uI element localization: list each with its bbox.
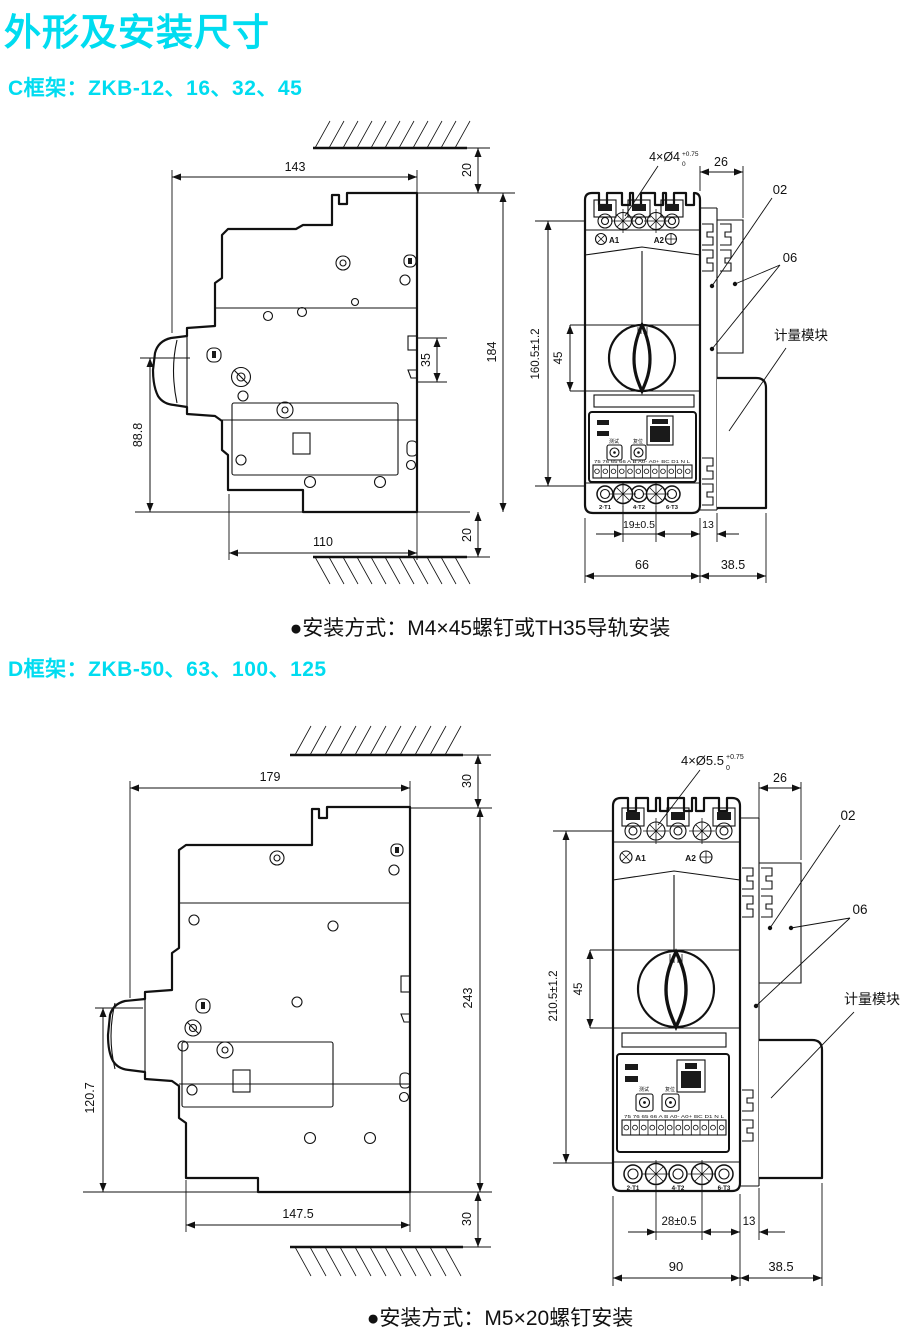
- dim-210-5: 210.5±1.2: [548, 970, 560, 1021]
- d-frame-front-view: A1 A2 测试 复位 75 76 65 66 A B A: [538, 738, 908, 1329]
- dim-20-top: 20: [460, 163, 474, 177]
- dim-height: 210.5±1.2: [548, 831, 613, 1163]
- section-d-heading: D框架：ZKB-50、63、100、125: [8, 653, 327, 683]
- dim-66: 66: [635, 558, 649, 572]
- holes-tol-lower: 0: [682, 161, 686, 168]
- control-panel: 测试 复位 75 76 65 66 A B A0- A0+ BC D1 N L: [617, 1054, 729, 1152]
- c-frame-front-view: A1 A2 测试 复位 75 76 65 66 A B A: [528, 128, 908, 611]
- terminal-4t2: 4·T2: [672, 1185, 685, 1192]
- dim-handle-height: 45: [573, 950, 613, 1028]
- callout-02-label: 02: [840, 808, 855, 823]
- metering-module-label: 计量模块: [774, 328, 828, 343]
- dim-90: 90: [669, 1259, 683, 1274]
- dim-13: 13: [743, 1216, 756, 1228]
- dim-110: 110: [313, 535, 333, 549]
- wall-hatch-bottom: [290, 1247, 463, 1276]
- terminal-strip-labels: 75 76 65 66 A B A0- A0+ BC D1 N L: [624, 1114, 725, 1119]
- callout-02-label: 02: [773, 182, 787, 197]
- dim-19: 19±0.5: [623, 519, 655, 531]
- a2-label: A2: [654, 236, 665, 245]
- dim-30-bottom: 30: [460, 1212, 474, 1226]
- a1-label: A1: [635, 853, 646, 863]
- a1-label: A1: [609, 236, 620, 245]
- rotary-handle: [638, 951, 714, 1027]
- dim-bottom-gap: 30: [460, 1192, 491, 1247]
- callout-02: 02: [710, 182, 787, 288]
- holes-tol-upper: +0.75: [682, 151, 699, 158]
- holes-tol-upper: +0.75: [726, 754, 744, 761]
- dim-20-bottom: 20: [460, 528, 474, 542]
- reset-button-label: 复位: [665, 1086, 675, 1093]
- d-mounting-note: ●安装方式：M5×20螺钉安装: [300, 1302, 700, 1332]
- holes-label: 4×Ø5.5: [681, 753, 724, 768]
- dim-height-total: 243: [461, 808, 480, 1192]
- dim-143: 143: [285, 160, 306, 174]
- dim-30-top: 30: [460, 774, 474, 788]
- dim-module-width: 38.5: [740, 1183, 822, 1286]
- d-frame-side-view: 179 30 243 120.7 147.5 30: [55, 698, 515, 1318]
- breaker-side-outline: [108, 807, 410, 1192]
- section-c-heading: C框架：ZKB-12、16、32、45: [8, 72, 302, 102]
- dim-184: 184: [485, 342, 499, 363]
- holes-tol-lower: 0: [726, 765, 730, 772]
- dim-147-5: 147.5: [282, 1207, 313, 1221]
- dim-120-7: 120.7: [83, 1082, 97, 1113]
- dim-26: 26: [773, 771, 787, 785]
- callout-06-label: 06: [852, 902, 867, 917]
- dim-45: 45: [573, 983, 585, 996]
- terminal-4t2: 4·T2: [633, 505, 645, 511]
- test-button-label: 测试: [609, 438, 619, 445]
- page: 外形及安装尺寸 C框架：ZKB-12、16、32、45: [0, 0, 908, 1338]
- c-mounting-note: ●安装方式：M4×45螺钉或TH35导轨安装: [254, 612, 706, 642]
- callout-06-label: 06: [783, 250, 797, 265]
- dim-26: 26: [714, 155, 728, 169]
- side-attachment: [740, 818, 822, 1186]
- dim-28: 28±0.5: [661, 1216, 696, 1228]
- terminal-2t1: 2·T1: [599, 505, 612, 511]
- dim-top-gap: 30: [410, 755, 492, 808]
- dim-38-5: 38.5: [768, 1259, 793, 1274]
- rotary-handle: [609, 325, 675, 391]
- terminal-6t3: 6·T3: [718, 1185, 731, 1192]
- a2-label: A2: [685, 853, 696, 863]
- dim-45: 45: [553, 352, 565, 365]
- dim-handle-height: 45: [553, 325, 585, 391]
- breaker-front-body: A1 A2 测试 复位 75 76 65 66 A B A: [613, 798, 740, 1192]
- terminal-2t1: 2·T1: [627, 1185, 640, 1192]
- dim-rail-width: 13: [714, 1188, 785, 1240]
- breaker-front-body: A1 A2 测试 复位 75 76 65 66 A B A: [585, 193, 700, 513]
- wall-hatch-top: [313, 121, 470, 148]
- metering-module-box: [717, 378, 766, 508]
- dim-bottom-gap: 20: [460, 512, 490, 557]
- dim-slot-height: 35: [417, 338, 447, 382]
- page-title: 外形及安装尺寸: [4, 2, 270, 56]
- dim-179: 179: [260, 770, 281, 784]
- c-frame-side-view: 143 20 184 35 88.8 110: [125, 108, 520, 615]
- dim-rail-width: 13: [678, 513, 739, 542]
- terminal-strip-labels: 75 76 65 66 A B A0- A0+ BC D1 N L: [594, 459, 691, 464]
- dim-38-5: 38.5: [721, 558, 745, 572]
- holes-label: 4×Ø4: [649, 150, 680, 164]
- metering-module-box: [759, 1040, 822, 1178]
- test-button-label: 测试: [639, 1086, 649, 1093]
- reset-button-label: 复位: [633, 438, 643, 445]
- wall-hatch-top: [290, 726, 463, 755]
- dim-35: 35: [419, 353, 433, 367]
- dim-body-width: 90: [613, 1196, 740, 1286]
- control-panel: 测试 复位 75 76 65 66 A B A0- A0+ BC D1 N L: [589, 412, 696, 482]
- side-attachment: [700, 208, 766, 510]
- dim-top-gap: 20: [417, 148, 515, 193]
- terminal-6t3: 6·T3: [666, 505, 679, 511]
- dim-13: 13: [702, 519, 714, 531]
- callout-02: 02: [768, 808, 856, 930]
- dim-height-total: 184: [485, 193, 503, 512]
- breaker-side-outline: [153, 193, 417, 512]
- wall-hatch-bottom: [313, 557, 470, 584]
- dim-88-8: 88.8: [131, 423, 145, 447]
- metering-module-label: 计量模块: [844, 991, 900, 1007]
- dim-243: 243: [461, 988, 475, 1009]
- dim-depth-top: 26: [759, 771, 801, 860]
- dim-160-5: 160.5±1.2: [530, 328, 542, 379]
